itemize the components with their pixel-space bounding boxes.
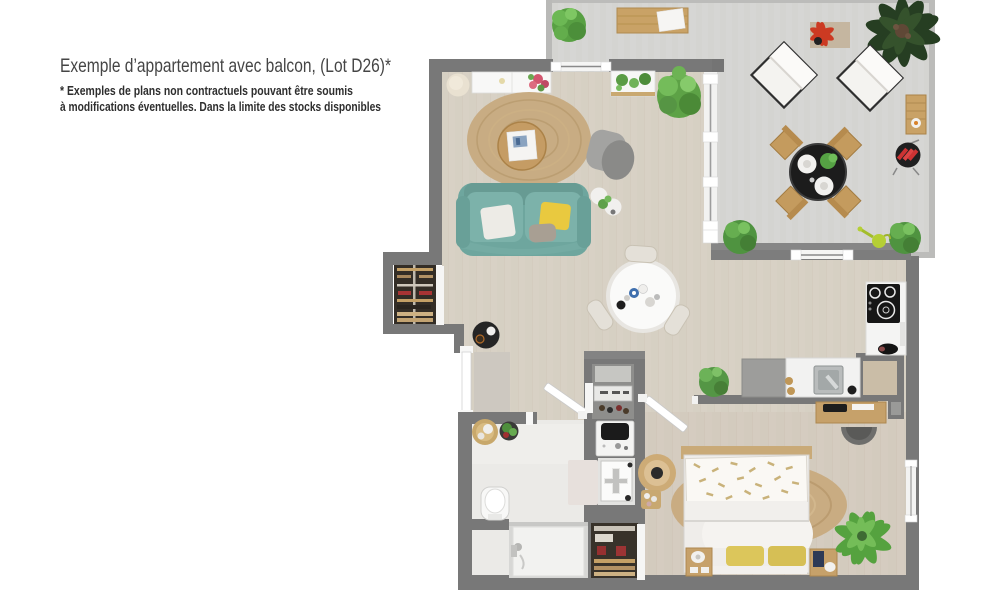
svg-text:Exemple d’appartement avec bal: Exemple d’appartement avec balcon, (Lot … [60, 55, 391, 77]
svg-text:* Exemples de plans non contra: * Exemples de plans non contractuels pou… [60, 83, 353, 98]
svg-text:à modifications éventuelles. D: à modifications éventuelles. Dans la lim… [60, 99, 381, 114]
